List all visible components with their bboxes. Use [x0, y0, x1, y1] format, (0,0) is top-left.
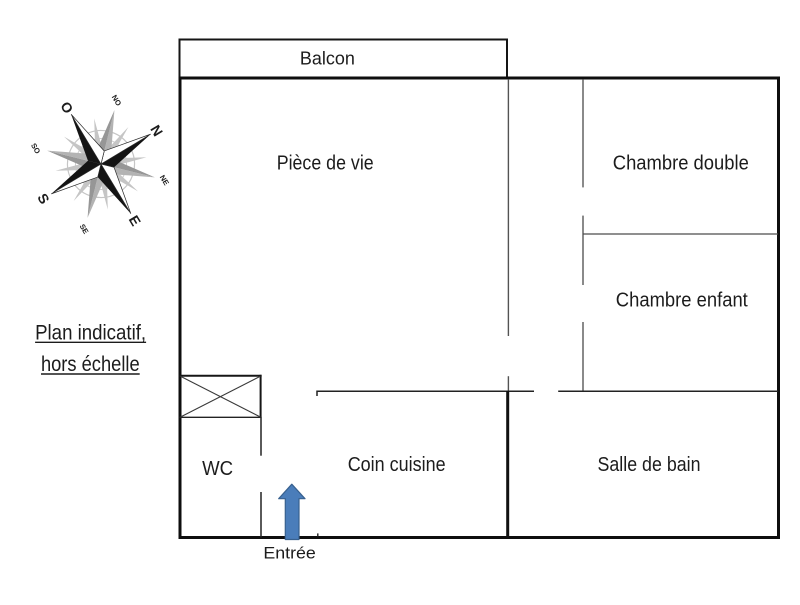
svg-text:Pièce de vie: Pièce de vie: [277, 153, 374, 175]
svg-text:Salle de bain: Salle de bain: [598, 454, 701, 476]
svg-text:Chambre double: Chambre double: [613, 152, 749, 174]
svg-text:Balcon: Balcon: [300, 49, 355, 69]
svg-text:Chambre enfant: Chambre enfant: [616, 290, 748, 312]
svg-text:Entrée: Entrée: [263, 544, 316, 563]
svg-text:hors échelle: hors échelle: [41, 352, 140, 376]
svg-text:Coin cuisine: Coin cuisine: [348, 454, 446, 476]
svg-text:WC: WC: [202, 458, 233, 480]
svg-text:Plan indicatif,: Plan indicatif,: [35, 321, 146, 345]
